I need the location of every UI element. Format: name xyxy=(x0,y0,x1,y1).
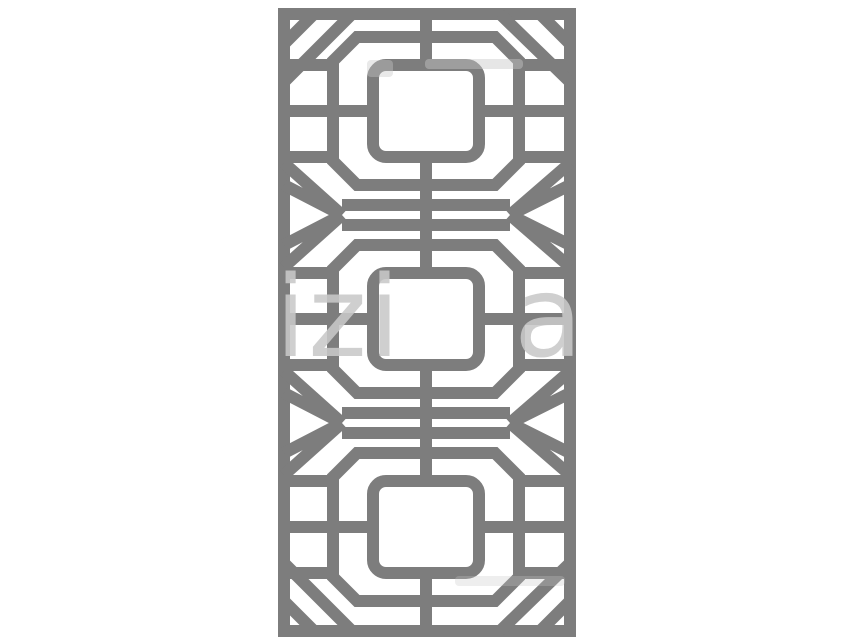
background xyxy=(0,0,850,638)
watermark-streak xyxy=(367,60,393,77)
watermark-text-left: izi xyxy=(275,253,402,383)
lattice-screen-panel: izi a xyxy=(0,0,850,638)
watermark-streak xyxy=(455,576,565,586)
watermark-streak xyxy=(425,59,523,69)
watermark-text-right: a xyxy=(514,253,585,383)
pattern-canvas: izi a xyxy=(0,0,850,638)
